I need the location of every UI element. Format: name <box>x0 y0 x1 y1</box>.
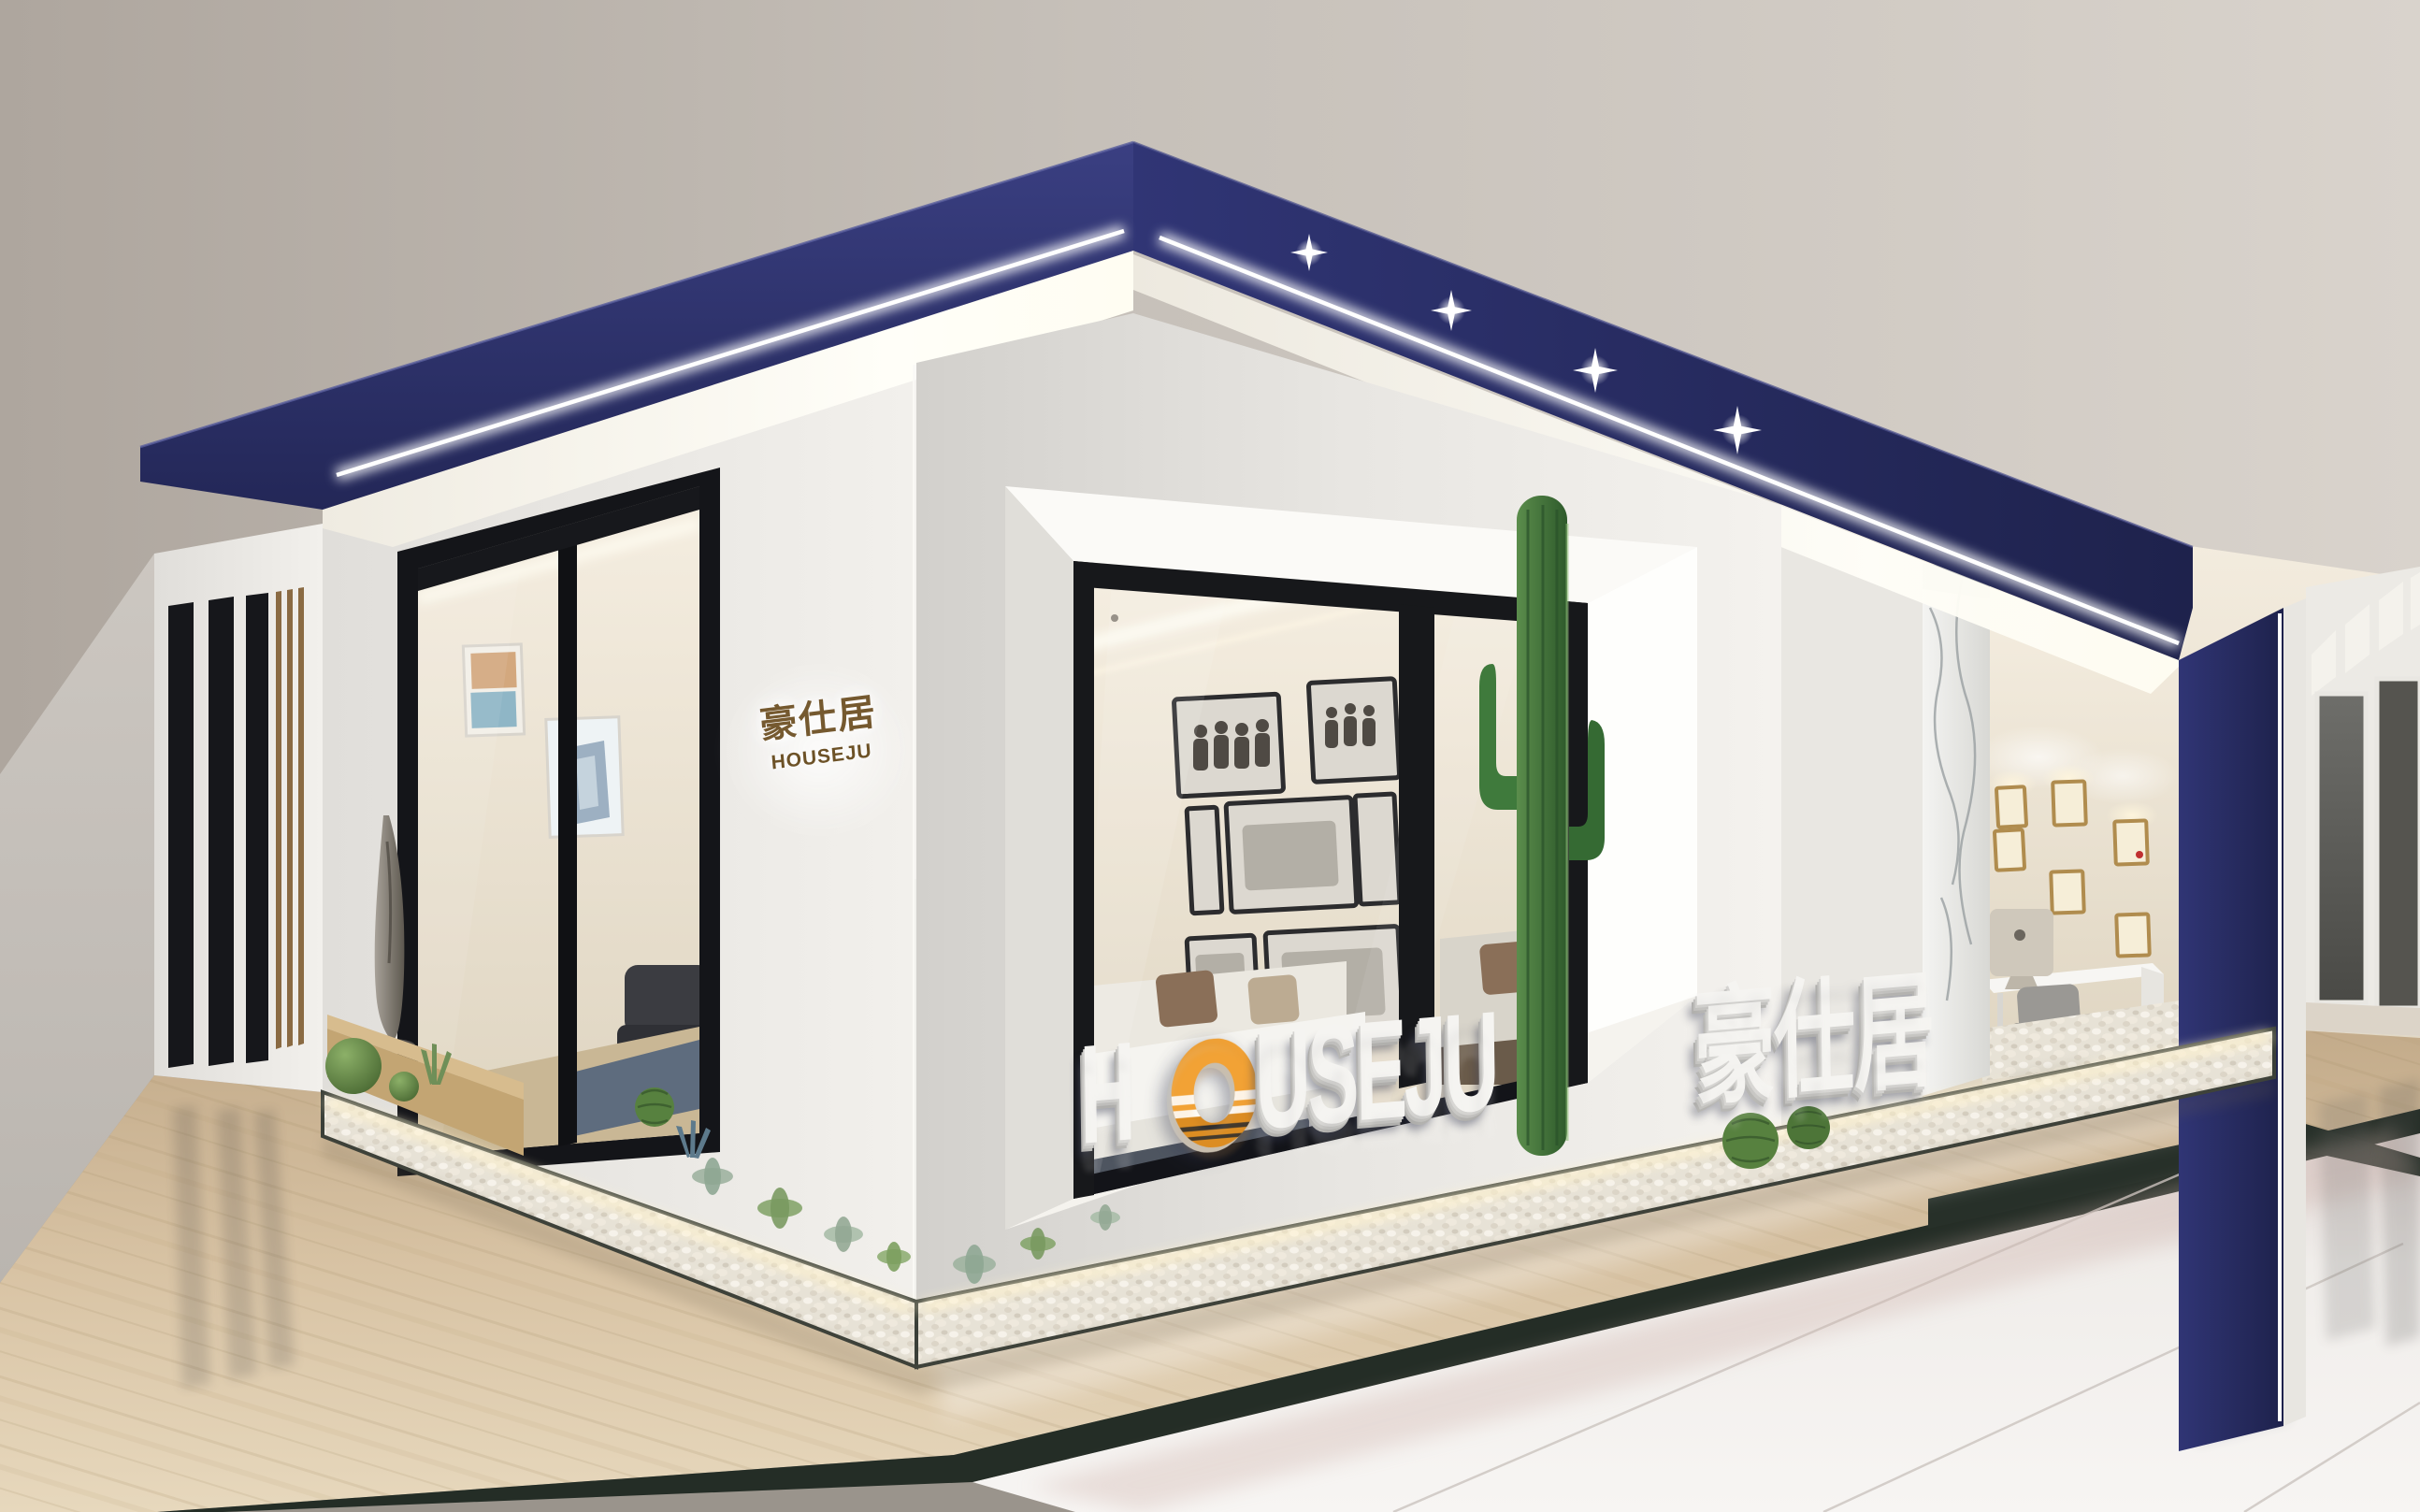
far-bay-floor <box>2306 1002 2420 1036</box>
wall-sign: 豪仕居 HOUSEJU <box>751 681 888 777</box>
watermark-reflection-text: USEJU <box>1255 1019 1498 1180</box>
far-display-bay <box>2306 567 2420 1036</box>
door-display-panel <box>2377 679 2420 1008</box>
certificate-seal <box>2136 851 2143 858</box>
moss-ball <box>325 1038 382 1094</box>
scene-canvas <box>0 0 2420 1512</box>
window-mullion <box>558 526 577 1146</box>
door-display-panel <box>2317 694 2366 1002</box>
navy-portal-jamb <box>2283 598 2306 1426</box>
artwork-building <box>546 717 623 838</box>
showroom-render: 豪仕居 HOUSEJU H USEJU 豪仕居 H USEJU 豪仕居 <box>0 0 2420 1512</box>
slat-panel <box>154 524 323 1092</box>
sun-o-icon-reflection <box>1171 1042 1258 1162</box>
watermark-reflection-text: 豪仕居 <box>1693 983 1934 1130</box>
moss-ball <box>389 1072 419 1102</box>
watermark-reflection-text: H <box>1079 1050 1133 1195</box>
slat-reflections <box>173 1106 295 1389</box>
